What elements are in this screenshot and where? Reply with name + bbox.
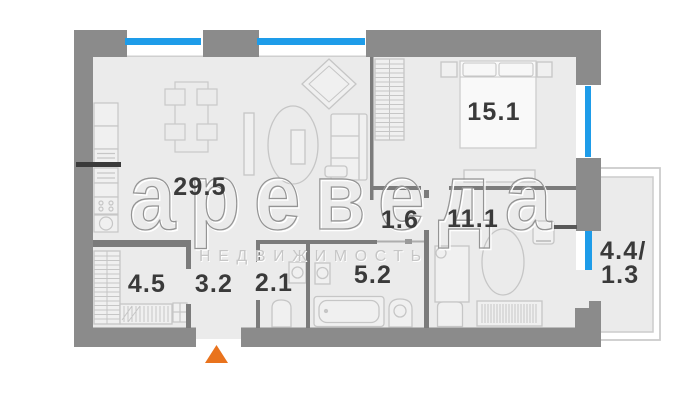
svg-text:3.2: 3.2 — [195, 270, 233, 298]
svg-text:11.1: 11.1 — [447, 205, 499, 233]
svg-text:2.1: 2.1 — [255, 269, 293, 297]
svg-text:29.5: 29.5 — [173, 173, 226, 201]
svg-text:НЕДВИЖИМОСТЬ: НЕДВИЖИМОСТЬ — [199, 248, 429, 265]
svg-text:4.5: 4.5 — [128, 270, 166, 298]
svg-text:1.6: 1.6 — [381, 206, 419, 234]
svg-text:1.3: 1.3 — [601, 261, 639, 289]
svg-text:15.1: 15.1 — [467, 98, 520, 126]
svg-text:5.2: 5.2 — [354, 261, 392, 289]
